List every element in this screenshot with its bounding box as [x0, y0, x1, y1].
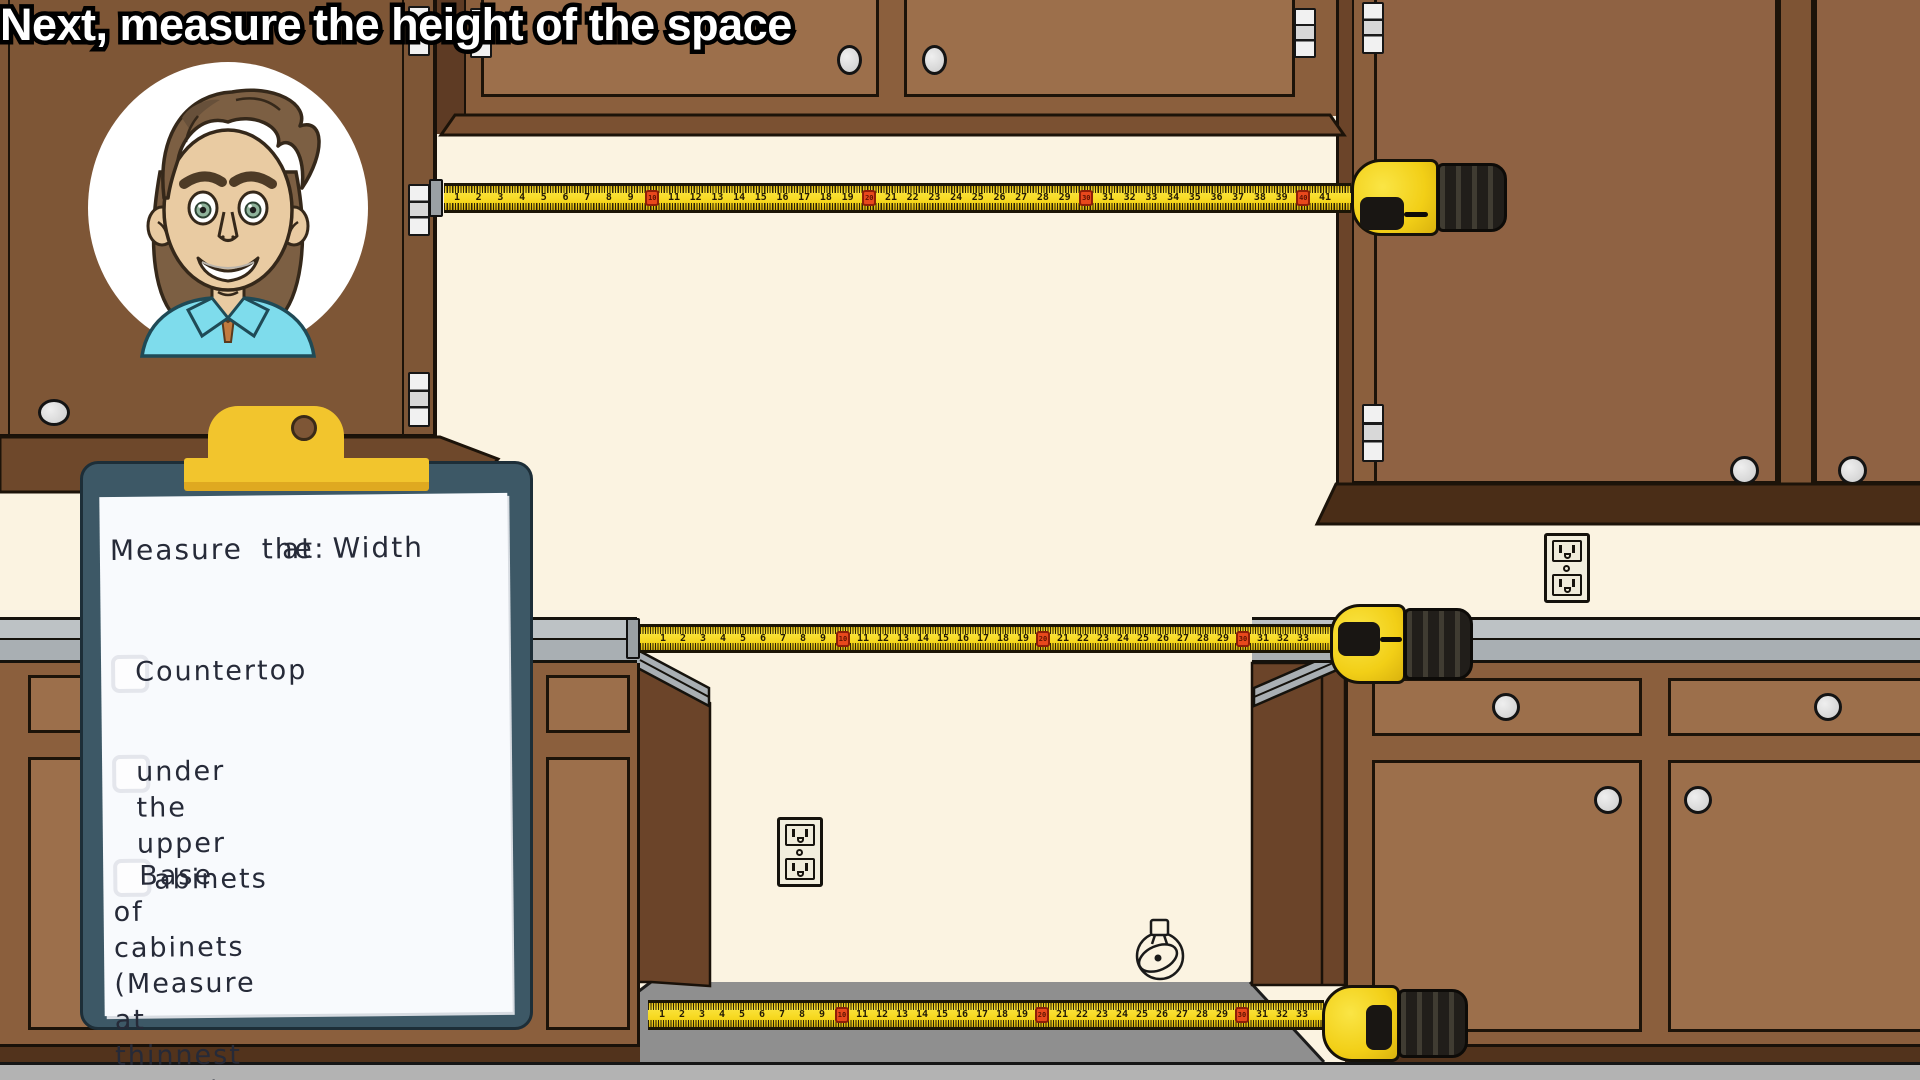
tape-number: 21 [1057, 634, 1069, 644]
tape-number: 3 [699, 1010, 705, 1020]
tape-number: 17 [977, 634, 989, 644]
tape-number: 17 [798, 193, 810, 203]
tape-number: 27 [1176, 1010, 1188, 1020]
tape-blade-base-width-tape: 1234567891011121314151617181920212223242… [648, 1000, 1324, 1030]
tape-number: 7 [780, 634, 786, 644]
tape-ticks-bottom [640, 643, 1332, 650]
tape-number: 21 [1056, 1010, 1068, 1020]
tape-number: 24 [1116, 1010, 1128, 1020]
tape-number: 31 [1256, 1010, 1268, 1020]
tape-number: 6 [759, 1010, 765, 1020]
tape-number: 12 [877, 634, 889, 644]
tape-ticks-bottom [444, 203, 1351, 210]
tape-number: 11 [857, 634, 869, 644]
tape-measure-grip [1404, 608, 1473, 680]
caption-text: Next, measure the height of the space [0, 0, 792, 50]
tape-highlight-number: 10 [645, 190, 659, 206]
tape-number: 4 [720, 634, 726, 644]
tape-number: 19 [1016, 1010, 1028, 1020]
tape-number: 41 [1319, 193, 1331, 203]
tape-number: 28 [1196, 1010, 1208, 1020]
tape-number: 9 [820, 634, 826, 644]
tape-number: 29 [1216, 1010, 1228, 1020]
tape-number: 31 [1257, 634, 1269, 644]
tape-number: 29 [1059, 193, 1071, 203]
tape-number: 4 [719, 1010, 725, 1020]
kitchen-scene: 1234567891011121314151617181920212223242… [0, 0, 1920, 1080]
tape-number: 1 [660, 634, 666, 644]
tape-highlight-number: 30 [1235, 1007, 1249, 1023]
tape-measure-grip [1437, 163, 1507, 232]
tape-number: 13 [897, 634, 909, 644]
tape-blade-upper-width-tape: 1234567891011121314151617181920212223242… [444, 183, 1351, 213]
tape-number: 32 [1277, 634, 1289, 644]
tape-number: 14 [917, 634, 929, 644]
tape-number: 37 [1232, 193, 1244, 203]
tape-number: 18 [996, 1010, 1008, 1020]
tape-measure-grip [1398, 989, 1468, 1058]
tape-highlight-number: 40 [1296, 190, 1310, 206]
checklist-item-label: Base of cabinets (Measure at thinnest po… [113, 858, 257, 1080]
tape-number: 6 [562, 193, 568, 203]
tape-highlight-number: 30 [1236, 631, 1250, 647]
tape-number: 39 [1276, 193, 1288, 203]
tape-number: 22 [907, 193, 919, 203]
tape-number: 33 [1297, 634, 1309, 644]
tape-number: 23 [1097, 634, 1109, 644]
tape-number: 14 [733, 193, 745, 203]
tape-number: 24 [1117, 634, 1129, 644]
tape-number: 32 [1124, 193, 1136, 203]
tape-hook [626, 618, 640, 659]
tape-number: 1 [659, 1010, 665, 1020]
checklist-item-label: Countertop [135, 653, 308, 691]
tape-number: 38 [1254, 193, 1266, 203]
tape-number: 19 [842, 193, 854, 203]
tape-highlight-number: 10 [836, 631, 850, 647]
tape-lock-stem [1404, 212, 1428, 217]
tape-highlight-number: 30 [1079, 190, 1093, 206]
tape-highlight-number: 20 [1035, 1007, 1049, 1023]
clipboard-content: Measure the Width at: Countertop under t… [99, 493, 512, 1016]
tape-number: 34 [1167, 193, 1179, 203]
tape-number: 2 [476, 193, 482, 203]
tape-number: 26 [993, 193, 1005, 203]
tape-number: 16 [956, 1010, 968, 1020]
tape-lock-stem [1380, 637, 1402, 642]
tape-number: 4 [519, 193, 525, 203]
tape-number: 16 [957, 634, 969, 644]
tape-number: 7 [779, 1010, 785, 1020]
tape-number: 32 [1276, 1010, 1288, 1020]
tape-number: 36 [1210, 193, 1222, 203]
tape-lock-button [1366, 1005, 1392, 1050]
tape-number: 9 [819, 1010, 825, 1020]
tape-number: 12 [876, 1010, 888, 1020]
tape-number: 1 [454, 193, 460, 203]
tape-number: 8 [606, 193, 612, 203]
tape-number: 22 [1076, 1010, 1088, 1020]
tape-ticks-bottom [648, 1020, 1324, 1027]
tape-number: 2 [679, 1010, 685, 1020]
clipboard-clip-shadow [184, 482, 429, 491]
presenter-avatar [86, 60, 370, 356]
tape-number: 25 [972, 193, 984, 203]
tape-number: 13 [896, 1010, 908, 1020]
tape-number: 5 [541, 193, 547, 203]
tape-number: 23 [928, 193, 940, 203]
checklist: Countertop under the upper cabinets Base… [109, 493, 504, 1016]
tape-number: 17 [976, 1010, 988, 1020]
tape-number: 3 [497, 193, 503, 203]
tape-number: 11 [668, 193, 680, 203]
tape-number: 15 [755, 193, 767, 203]
tape-number: 27 [1015, 193, 1027, 203]
tape-number: 26 [1156, 1010, 1168, 1020]
tape-number: 25 [1136, 1010, 1148, 1020]
tape-number: 31 [1102, 193, 1114, 203]
tape-number: 18 [997, 634, 1009, 644]
tape-number: 13 [711, 193, 723, 203]
tape-number: 33 [1296, 1010, 1308, 1020]
tape-number: 28 [1037, 193, 1049, 203]
tape-number: 11 [856, 1010, 868, 1020]
tape-lock-button [1360, 197, 1404, 230]
tape-number: 24 [950, 193, 962, 203]
tape-number: 6 [760, 634, 766, 644]
tape-number: 8 [800, 634, 806, 644]
tape-number: 2 [680, 634, 686, 644]
tape-number: 35 [1189, 193, 1201, 203]
tape-number: 23 [1096, 1010, 1108, 1020]
tape-number: 7 [584, 193, 590, 203]
tape-highlight-number: 20 [1036, 631, 1050, 647]
tape-highlight-number: 20 [862, 190, 876, 206]
tape-number: 12 [690, 193, 702, 203]
tape-number: 5 [740, 634, 746, 644]
tape-number: 21 [885, 193, 897, 203]
tape-number: 5 [739, 1010, 745, 1020]
tape-number: 27 [1177, 634, 1189, 644]
tape-number: 9 [628, 193, 634, 203]
tape-number: 28 [1197, 634, 1209, 644]
tape-lock-button [1338, 622, 1380, 656]
tape-number: 15 [937, 634, 949, 644]
tape-number: 16 [776, 193, 788, 203]
tape-number: 33 [1145, 193, 1157, 203]
tape-number: 14 [916, 1010, 928, 1020]
tape-number: 15 [936, 1010, 948, 1020]
tape-blade-counter-width-tape: 1234567891011121314151617181920212223242… [640, 624, 1332, 653]
tape-number: 8 [799, 1010, 805, 1020]
tape-number: 3 [700, 634, 706, 644]
tape-highlight-number: 10 [835, 1007, 849, 1023]
clipboard-clip-hole [291, 415, 317, 441]
tape-number: 18 [820, 193, 832, 203]
tape-number: 19 [1017, 634, 1029, 644]
tape-hook [429, 179, 443, 217]
tape-number: 29 [1217, 634, 1229, 644]
tape-number: 25 [1137, 634, 1149, 644]
tape-number: 22 [1077, 634, 1089, 644]
tape-number: 26 [1157, 634, 1169, 644]
